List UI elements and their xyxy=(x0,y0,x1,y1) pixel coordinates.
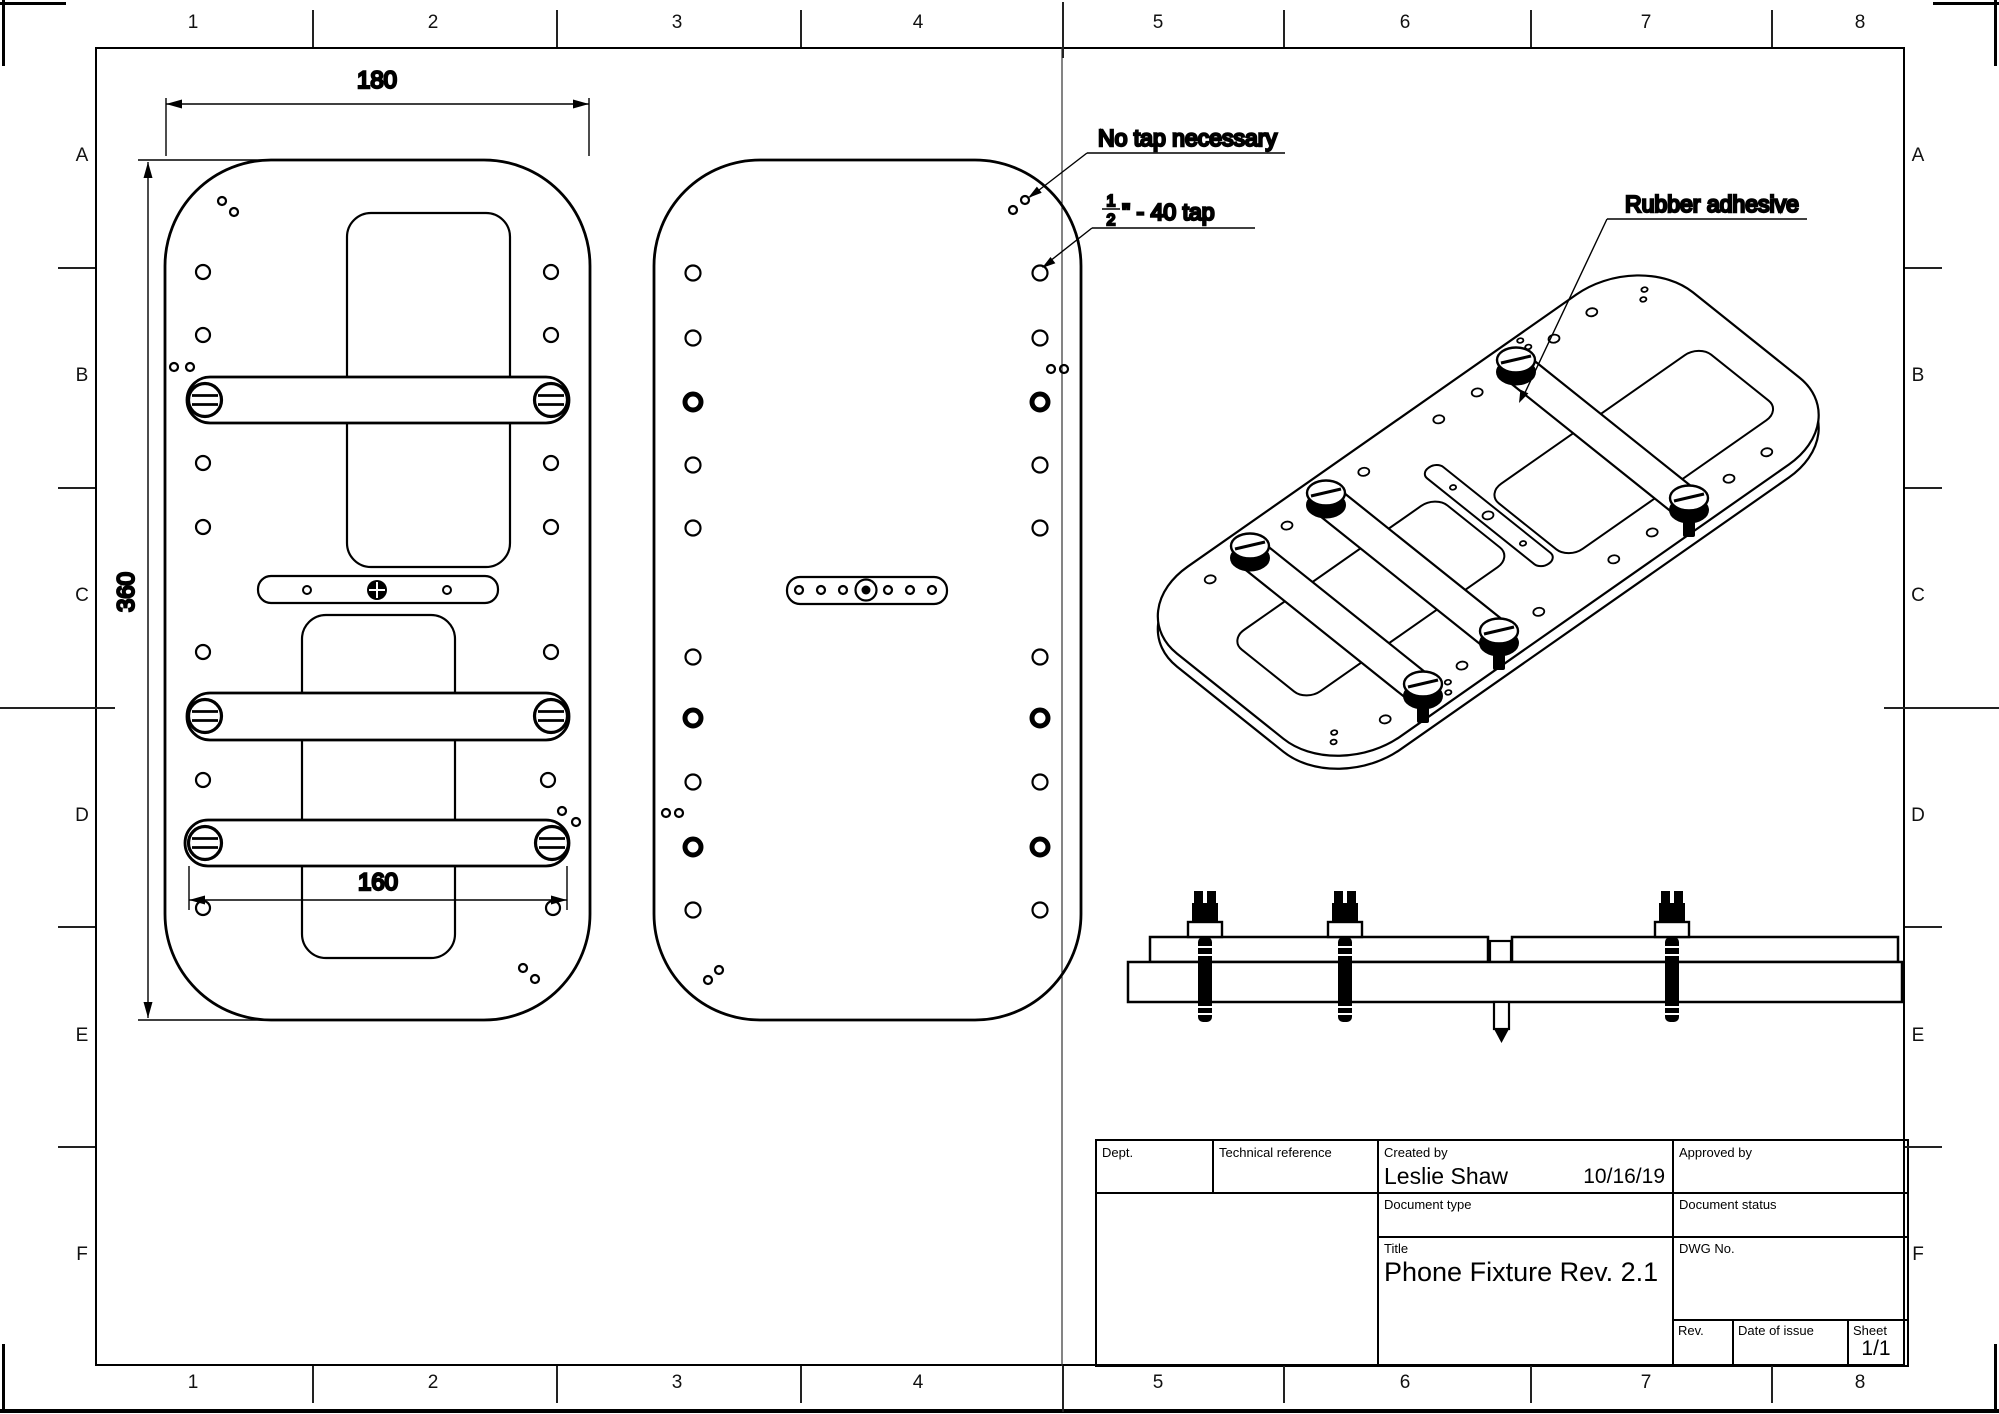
created-date: 10/16/19 xyxy=(1527,1165,1665,1189)
rev-label: Rev. xyxy=(1678,1323,1704,1338)
grid-row-label-right: C xyxy=(1904,585,1932,609)
grid-tick-top xyxy=(800,10,802,47)
grid-tick-right xyxy=(1884,707,1999,709)
grid-col-label-bottom: 6 xyxy=(1385,1372,1425,1394)
grid-tick-top xyxy=(312,10,314,47)
grid-col-label-top: 1 xyxy=(173,12,213,34)
grid-row-label-right: A xyxy=(1904,145,1932,169)
grid-row-label-right: B xyxy=(1904,365,1932,389)
note-no-tap-text: No tap necessary xyxy=(1098,125,1277,151)
grid-tick-right xyxy=(1905,487,1942,489)
title-label: Title xyxy=(1384,1241,1408,1256)
doc-type-label: Document type xyxy=(1384,1197,1471,1212)
grid-col-label-bottom: 5 xyxy=(1138,1372,1178,1394)
approved-by-label: Approved by xyxy=(1679,1145,1752,1160)
dim-180 xyxy=(166,98,589,156)
drawing-sheet: 180 360 160 xyxy=(0,0,1999,1414)
grid-row-label-left: B xyxy=(68,365,96,389)
grid-col-label-bottom: 7 xyxy=(1626,1372,1666,1394)
grid-row-label-left: D xyxy=(68,805,96,829)
grid-col-label-bottom: 3 xyxy=(657,1372,697,1394)
side-locating-pin xyxy=(1494,1002,1509,1043)
grid-tick-right xyxy=(1905,926,1942,928)
grid-tick-top xyxy=(1283,10,1285,47)
front-center-bar xyxy=(258,576,498,603)
side-view xyxy=(1128,891,1902,1043)
created-by-label: Created by xyxy=(1384,1145,1448,1160)
note-tap-numerator: 1 xyxy=(1107,193,1116,210)
dim-180-text: 180 xyxy=(357,67,397,94)
grid-col-label-top: 7 xyxy=(1626,12,1666,34)
iso-screw-icon xyxy=(1670,486,1708,523)
grid-tick-top xyxy=(1530,10,1532,47)
grid-row-label-left: C xyxy=(68,585,96,609)
note-tap-text: " - 40 tap xyxy=(1122,199,1215,225)
title-block: Dept. Technical reference Created by Les… xyxy=(1095,1139,1909,1367)
iso-screw-icon xyxy=(1307,481,1345,518)
grid-col-label-top: 3 xyxy=(657,12,697,34)
grid-row-label-left: F xyxy=(68,1244,96,1268)
grid-tick-top xyxy=(1771,10,1773,47)
grid-tick-bottom xyxy=(312,1366,314,1403)
title-value: Phone Fixture Rev. 2.1 xyxy=(1384,1257,1658,1288)
grid-tick-bottom xyxy=(1062,1366,1064,1412)
side-bar-right xyxy=(1512,937,1898,962)
created-by-name: Leslie Shaw xyxy=(1384,1163,1508,1190)
dim-360-text: 360 xyxy=(113,572,140,612)
grid-col-label-top: 4 xyxy=(898,12,938,34)
dwg-no-label: DWG No. xyxy=(1679,1241,1735,1256)
grid-tick-left xyxy=(58,926,95,928)
front-slotted-screws xyxy=(189,384,569,860)
dim-160-text: 160 xyxy=(358,869,398,896)
grid-tick-bottom xyxy=(800,1366,802,1403)
tech-ref-label: Technical reference xyxy=(1219,1145,1332,1160)
grid-col-label-top: 5 xyxy=(1138,12,1178,34)
grid-tick-bottom xyxy=(1530,1366,1532,1403)
grid-tick-top xyxy=(556,10,558,47)
front-view: 180 360 160 xyxy=(113,67,590,1020)
sheet-value: 1/1 xyxy=(1847,1337,1905,1361)
grid-tick-left xyxy=(0,707,115,709)
grid-tick-bottom xyxy=(556,1366,558,1403)
front-clamp-bar-1 xyxy=(187,377,569,423)
side-base-plate xyxy=(1128,962,1902,1002)
front-clamp-bar-3 xyxy=(185,820,569,866)
grid-row-label-left: A xyxy=(68,145,96,169)
grid-tick-left xyxy=(58,1146,95,1148)
grid-col-label-bottom: 2 xyxy=(413,1372,453,1394)
doc-status-label: Document status xyxy=(1679,1197,1777,1212)
side-peg-top xyxy=(1490,941,1511,962)
grid-row-label-left: E xyxy=(68,1025,96,1049)
grid-tick-bottom xyxy=(1771,1366,1773,1403)
back-center-slot xyxy=(787,577,947,604)
front-phone-bottom-outline xyxy=(302,615,455,958)
date-of-issue-label: Date of issue xyxy=(1738,1323,1814,1338)
sheet-label: Sheet xyxy=(1853,1323,1887,1338)
grid-col-label-bottom: 4 xyxy=(898,1372,938,1394)
grid-col-label-top: 2 xyxy=(413,12,453,34)
iso-screw-icon xyxy=(1231,534,1269,571)
note-rubber-adhesive-text: Rubber adhesive xyxy=(1625,191,1799,217)
grid-col-label-bottom: 8 xyxy=(1840,1372,1880,1394)
grid-col-label-bottom: 1 xyxy=(173,1372,213,1394)
grid-row-label-right: E xyxy=(1904,1025,1932,1049)
grid-tick-right xyxy=(1905,1146,1942,1148)
note-tap-denominator: 2 xyxy=(1107,212,1116,229)
grid-col-label-top: 6 xyxy=(1385,12,1425,34)
leader-no-tap xyxy=(1028,153,1285,198)
grid-tick-top xyxy=(1062,2,1064,58)
front-clamp-bar-2 xyxy=(187,693,569,740)
grid-col-label-top: 8 xyxy=(1840,12,1880,34)
grid-row-label-right: F xyxy=(1904,1244,1932,1268)
grid-row-label-right: D xyxy=(1904,805,1932,829)
dept-label: Dept. xyxy=(1102,1145,1133,1160)
grid-tick-left xyxy=(58,267,95,269)
grid-tick-bottom xyxy=(1283,1366,1285,1403)
iso-view: Rubber adhesive xyxy=(1124,191,1853,794)
grid-tick-right xyxy=(1905,267,1942,269)
grid-tick-left xyxy=(58,487,95,489)
